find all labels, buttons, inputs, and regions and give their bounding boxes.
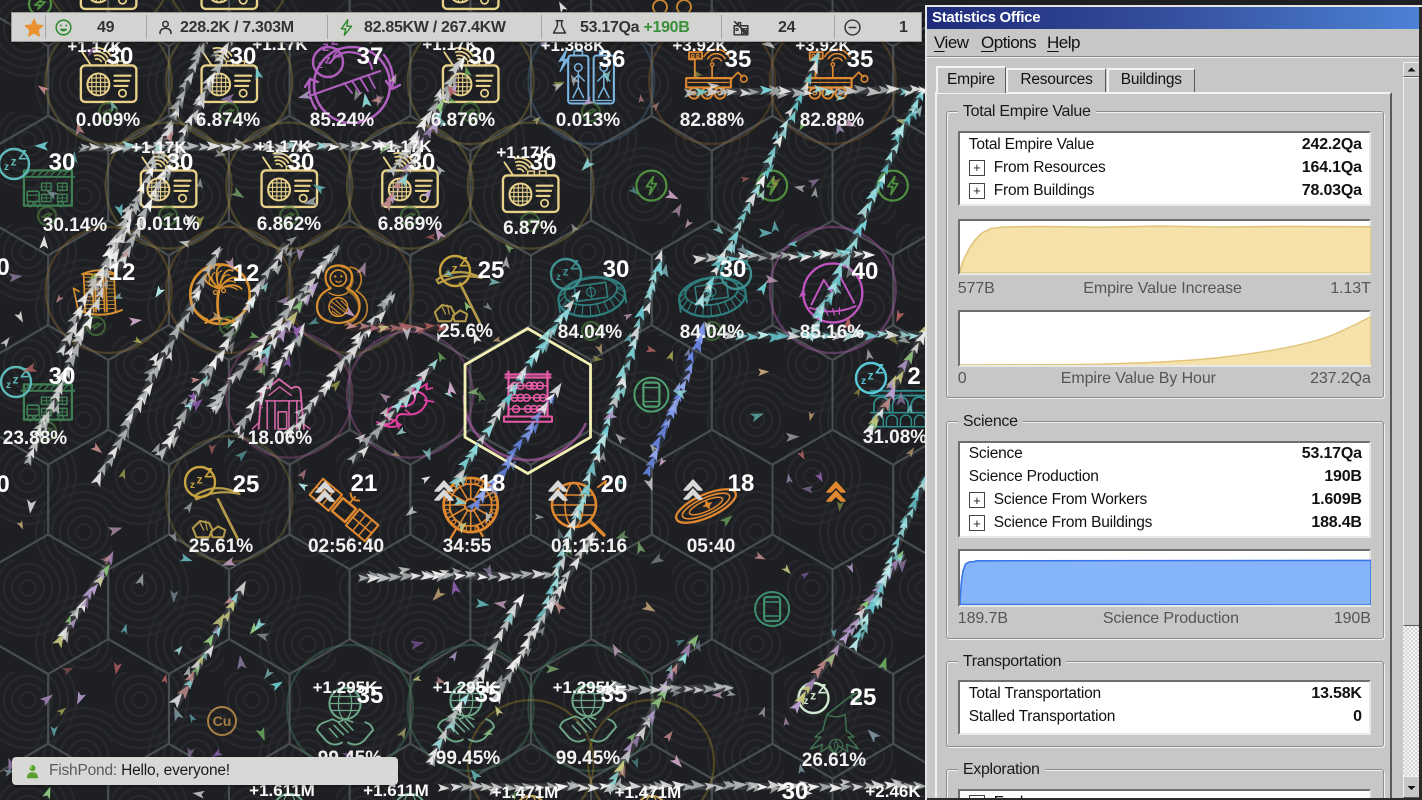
svg-text:z: z <box>556 272 561 283</box>
svg-text:99.45%: 99.45% <box>556 748 621 769</box>
svg-text:30: 30 <box>603 256 630 283</box>
svg-text:+1.17K: +1.17K <box>376 137 432 156</box>
svg-text:18: 18 <box>728 470 755 497</box>
svg-text:85.16%: 85.16% <box>800 322 865 343</box>
svg-text:25: 25 <box>478 257 505 284</box>
svg-text:+2.46K: +2.46K <box>865 782 921 800</box>
svg-text:05:40: 05:40 <box>687 536 736 557</box>
svg-text:20: 20 <box>601 471 628 498</box>
svg-text:85.24%: 85.24% <box>310 110 375 131</box>
svg-text:z: z <box>190 480 195 491</box>
svg-text:z: z <box>868 368 874 382</box>
svg-text:0: 0 <box>0 471 10 498</box>
svg-text:+1.17K: +1.17K <box>496 143 552 162</box>
svg-text:+1.471M: +1.471M <box>615 783 682 800</box>
svg-text:0.009%: 0.009% <box>76 110 141 131</box>
svg-text:6.869%: 6.869% <box>378 214 443 235</box>
svg-text:z: z <box>11 154 17 168</box>
svg-text:30: 30 <box>49 149 76 176</box>
svg-text:82.88%: 82.88% <box>680 110 745 131</box>
svg-text:+1.295K: +1.295K <box>313 678 378 697</box>
svg-text:12: 12 <box>109 259 136 286</box>
svg-text:6.862%: 6.862% <box>257 214 322 235</box>
svg-text:Z: Z <box>20 365 29 381</box>
svg-text:z: z <box>861 376 866 387</box>
svg-text:25.61%: 25.61% <box>189 536 254 557</box>
svg-text:02:56:40: 02:56:40 <box>308 536 384 557</box>
svg-text:34:55: 34:55 <box>443 536 492 557</box>
svg-text:25.6%: 25.6% <box>439 321 493 342</box>
svg-text:37: 37 <box>357 43 384 70</box>
svg-text:z: z <box>318 60 323 71</box>
svg-text:z: z <box>4 162 9 173</box>
svg-text:0.013%: 0.013% <box>556 110 621 131</box>
svg-text:30: 30 <box>720 256 747 283</box>
svg-text:z: z <box>563 264 569 278</box>
svg-text:25: 25 <box>850 684 877 711</box>
svg-text:6.876%: 6.876% <box>431 110 496 131</box>
svg-text:26.61%: 26.61% <box>802 750 867 771</box>
svg-text:82.88%: 82.88% <box>800 110 865 131</box>
svg-text:z: z <box>325 52 331 66</box>
svg-text:2: 2 <box>907 363 920 390</box>
svg-text:30: 30 <box>782 778 809 800</box>
svg-text:Z: Z <box>459 254 468 270</box>
svg-text:35: 35 <box>725 46 752 73</box>
svg-text:Z: Z <box>18 147 27 163</box>
svg-text:Z: Z <box>875 361 884 377</box>
svg-text:30: 30 <box>49 363 76 390</box>
svg-text:Z: Z <box>570 257 579 273</box>
svg-text:+1.295K: +1.295K <box>433 678 498 697</box>
svg-text:6.874%: 6.874% <box>196 110 261 131</box>
svg-text:Z: Z <box>332 45 341 61</box>
svg-text:+1.17K: +1.17K <box>255 137 311 156</box>
svg-text:25: 25 <box>233 471 260 498</box>
svg-text:+1.471M: +1.471M <box>492 783 559 800</box>
svg-text:0.011%: 0.011% <box>136 214 199 235</box>
svg-text:0: 0 <box>0 254 10 281</box>
svg-text:84.04%: 84.04% <box>558 322 623 343</box>
svg-text:40: 40 <box>852 258 879 285</box>
svg-text:6.87%: 6.87% <box>503 218 557 239</box>
svg-text:Z: Z <box>818 681 827 697</box>
svg-text:18: 18 <box>479 470 506 497</box>
svg-text:z: z <box>13 372 19 386</box>
svg-text:01:15:16: 01:15:16 <box>551 536 627 557</box>
svg-text:99.45%: 99.45% <box>436 748 501 769</box>
svg-text:84.04%: 84.04% <box>680 322 745 343</box>
svg-text:12: 12 <box>233 260 260 287</box>
svg-text:z: z <box>197 472 203 486</box>
svg-text:z: z <box>6 380 11 391</box>
svg-text:23.88%: 23.88% <box>3 428 68 449</box>
svg-text:z: z <box>452 261 458 275</box>
svg-text:21: 21 <box>351 470 378 497</box>
svg-text:31.08%: 31.08% <box>863 427 925 448</box>
svg-text:30.14%: 30.14% <box>43 215 108 236</box>
svg-text:Cu: Cu <box>213 713 232 729</box>
svg-text:+1.17K: +1.17K <box>131 138 187 157</box>
svg-text:+1.295K: +1.295K <box>553 678 618 697</box>
svg-text:18.06%: 18.06% <box>248 428 313 449</box>
svg-text:Z: Z <box>204 465 213 481</box>
